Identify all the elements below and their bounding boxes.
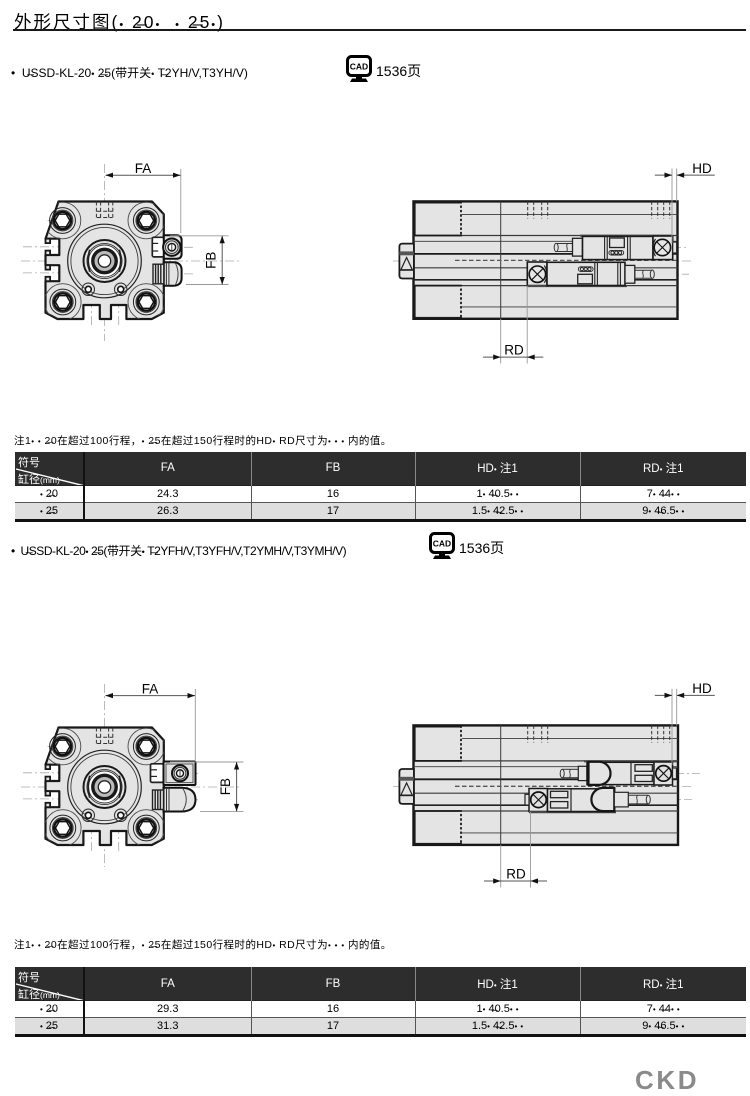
svg-text:HD: HD: [692, 681, 712, 696]
svg-text:FB: FB: [218, 778, 233, 795]
svg-text:HD: HD: [692, 161, 712, 176]
svg-text:FA: FA: [142, 681, 159, 696]
svg-text:FA: FA: [135, 161, 152, 176]
svg-text:RD: RD: [504, 343, 524, 358]
svg-text:RD: RD: [506, 867, 526, 882]
svg-text:FB: FB: [204, 252, 219, 269]
